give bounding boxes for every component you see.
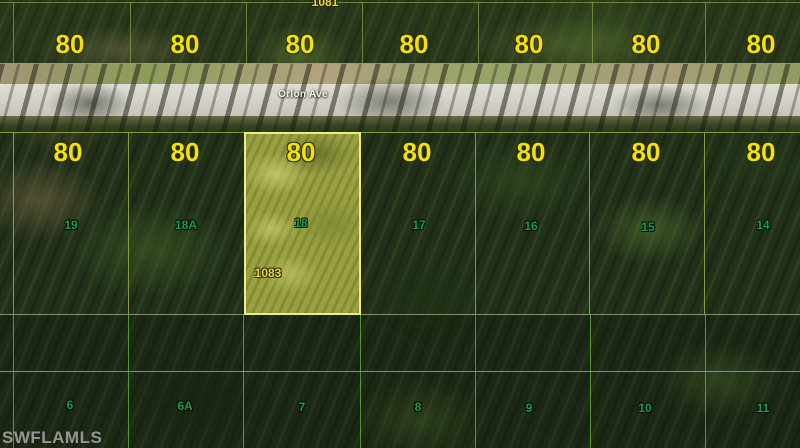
parcel-boundary-line [589,132,590,314]
lot-number-label: 9 [526,402,533,414]
parcel-boundary-line [0,371,800,372]
aerial-parcel-map: 1081 80 80 80 80 80 80 80 Orlon Ave 80 8… [0,0,800,448]
width-label: 80 [517,139,546,165]
lot-number-label: 7 [299,401,306,413]
bottom-forest-zone [0,314,800,448]
lot-number-label: 8 [415,401,422,413]
road [0,63,800,132]
lot-number-label: 17 [412,219,425,231]
lot-number-label: 6 [67,399,74,411]
parcel-boundary-line [478,2,479,63]
parcel-boundary-line [128,314,129,448]
parcel-boundary-line [243,314,244,448]
tree-shadows [0,63,800,132]
parcel-boundary-line [592,2,593,63]
width-label: 80 [286,31,315,57]
width-label: 80 [56,31,85,57]
lot-number-label: 14 [756,219,769,231]
lot-number-label: 19 [64,219,77,231]
parcel-boundary-line [590,314,591,448]
parcel-boundary-line [362,2,363,63]
parcel-boundary-line [0,63,800,64]
lot-number-label: 10 [638,402,651,414]
mls-watermark: SWFLAMLS [2,429,102,446]
parcel-boundary-line [475,132,476,314]
width-label: 80 [400,31,429,57]
width-label: 80 [632,139,661,165]
parcel-boundary-line [705,2,706,63]
width-label: 80 [747,31,776,57]
width-label: 80 [287,139,316,165]
width-label: 80 [515,31,544,57]
lot-number-label: 15 [641,221,654,233]
width-label: 80 [403,139,432,165]
parcel-boundary-line [705,314,706,448]
width-label: 80 [54,139,83,165]
parcel-boundary-line [13,132,14,314]
parcel-number-label: 1083 [255,267,282,279]
parcel-boundary-line [704,132,705,314]
parcel-boundary-line [13,2,14,63]
lot-number-label: 6A [177,400,192,412]
street-name-label: Orlon Ave [278,90,328,100]
parcel-boundary-line [475,314,476,448]
width-label: 80 [747,139,776,165]
lot-number-label: 18A [175,219,197,231]
parcel-boundary-line [246,2,247,63]
lot-number-label: 18 [294,217,307,229]
parcel-boundary-line [0,314,800,315]
width-label: 80 [171,31,200,57]
parcel-boundary-line [0,132,800,133]
parcel-boundary-line [128,132,129,314]
lot-number-label: 16 [524,220,537,232]
lot-number-label: 11 [757,402,770,414]
width-label: 80 [632,31,661,57]
parcel-number-label: 1081 [312,0,339,8]
parcel-boundary-line [130,2,131,63]
parcel-boundary-line [0,2,800,3]
parcel-boundary-line [360,314,361,448]
width-label: 80 [171,139,200,165]
